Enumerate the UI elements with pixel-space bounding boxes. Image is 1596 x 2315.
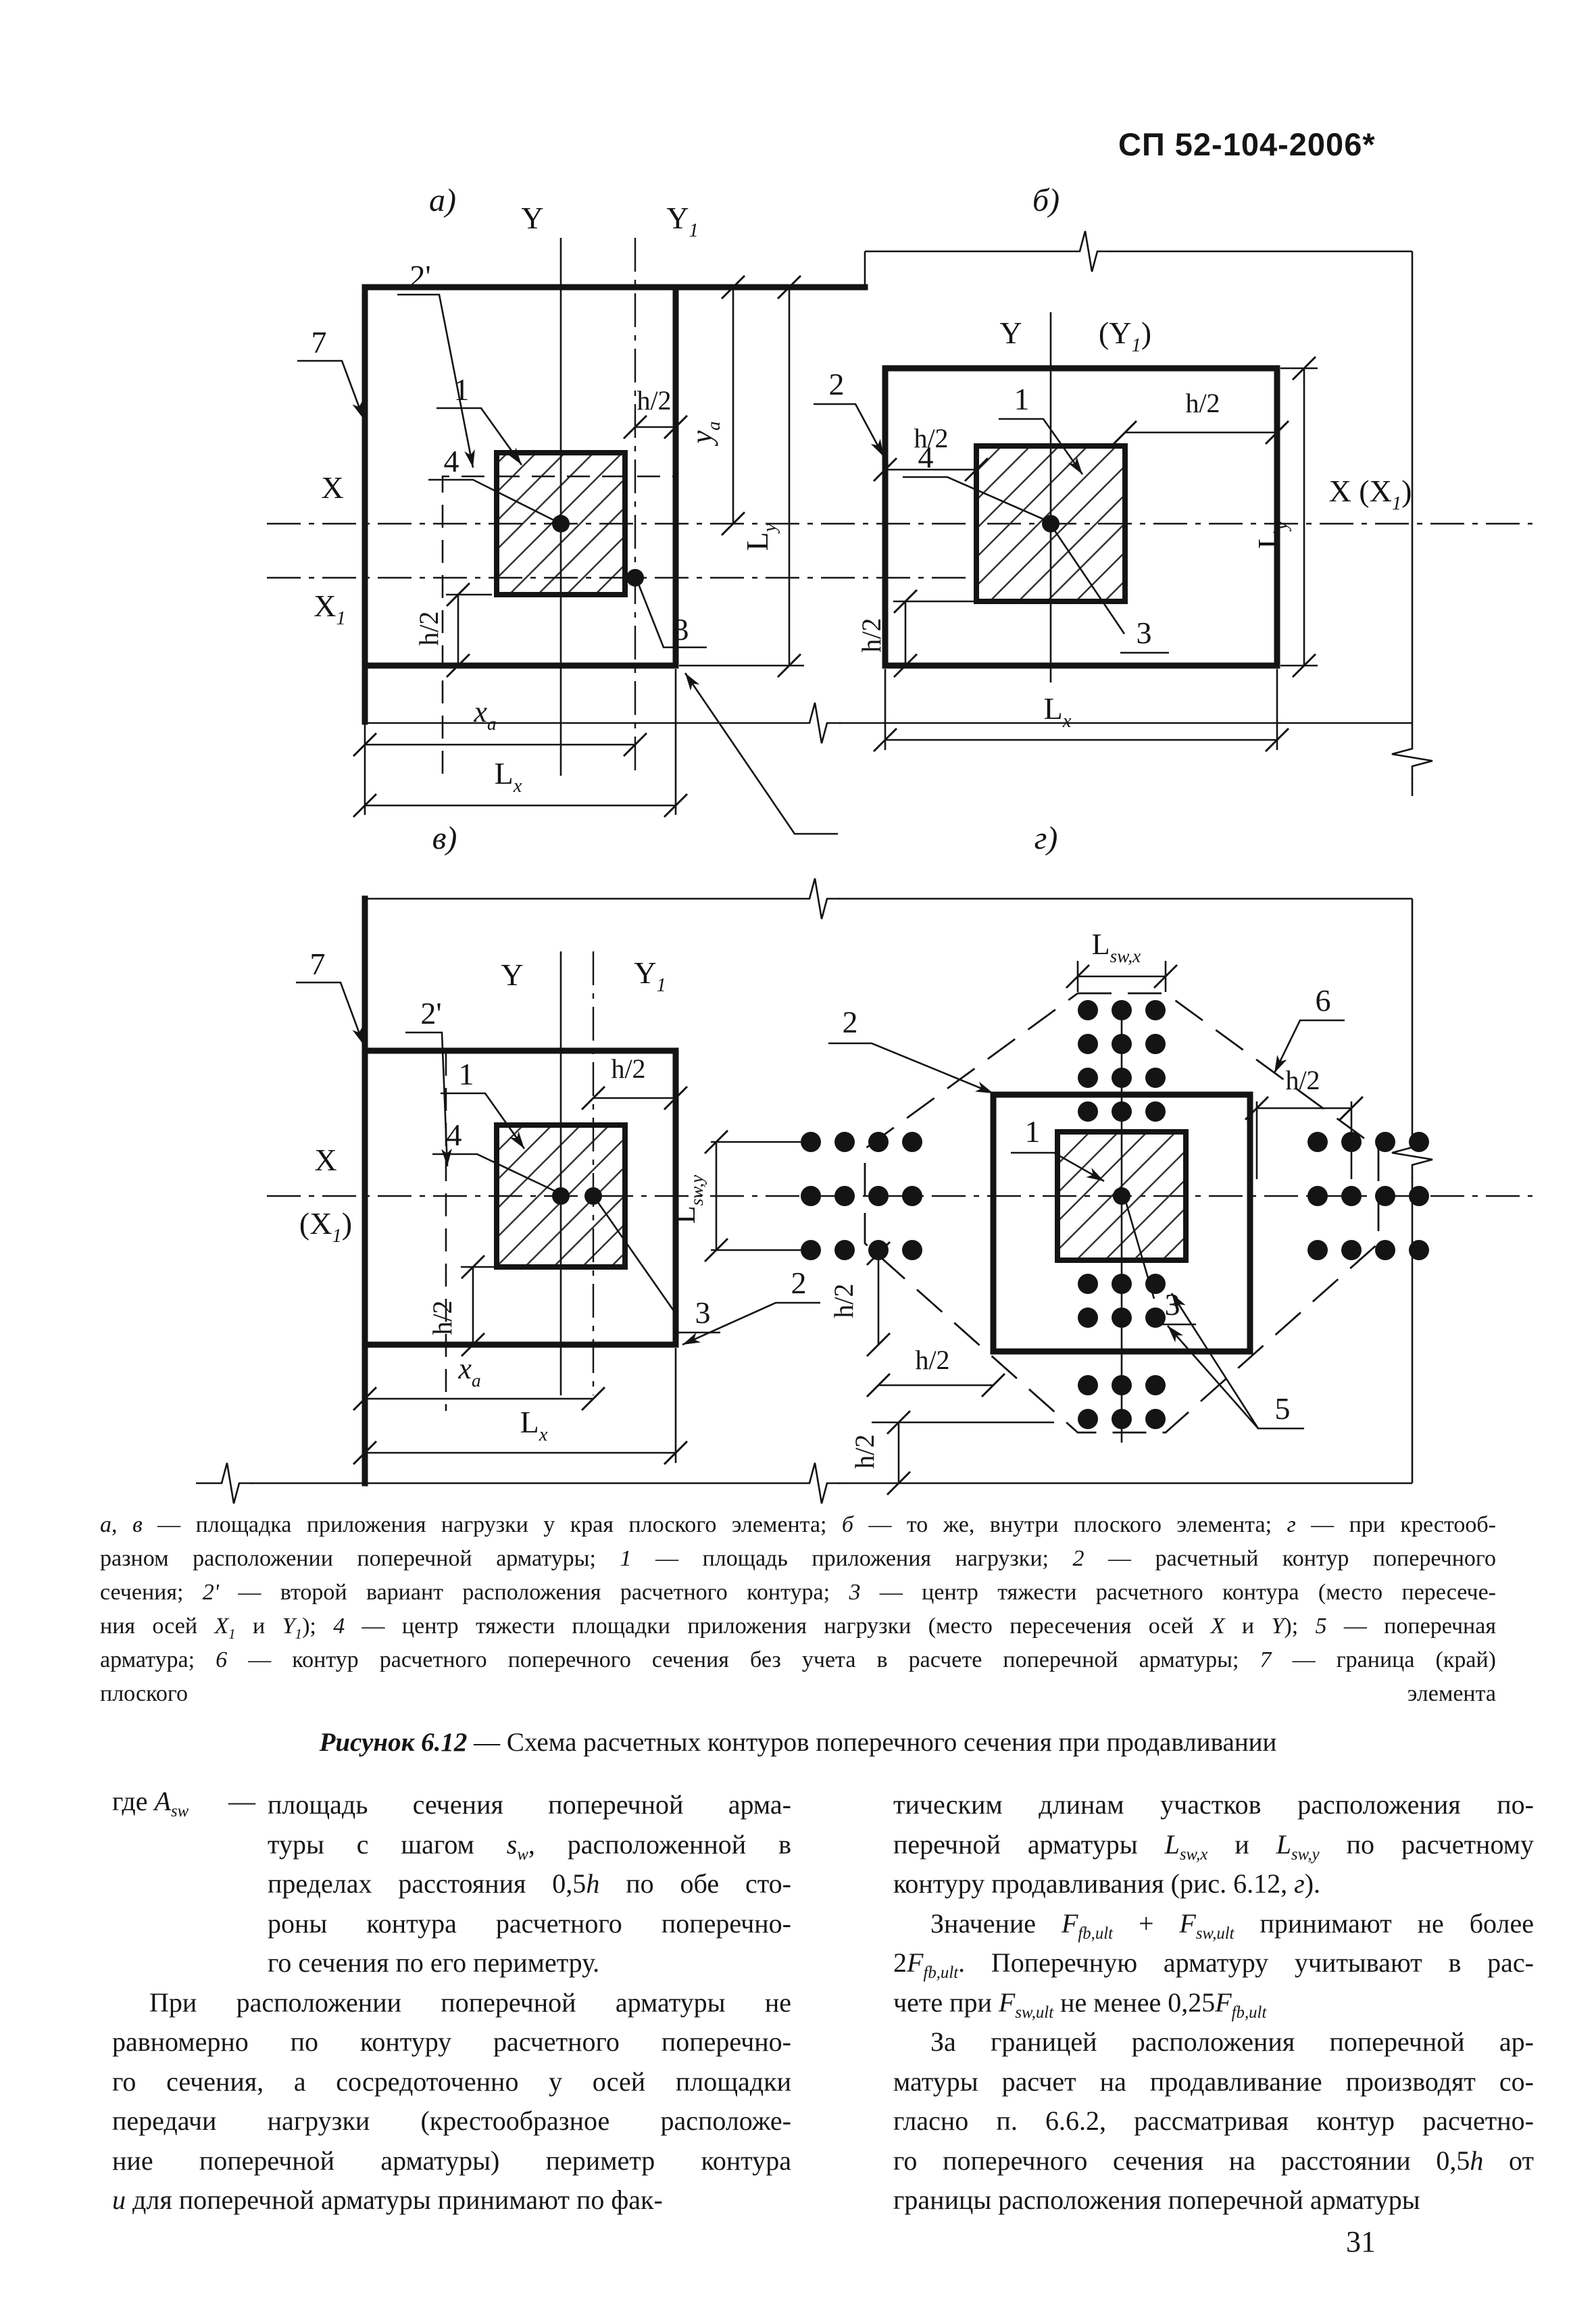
- text-line: ние поперечной арматуры) периметр контур…: [112, 2141, 791, 2181]
- rebar-dot: [801, 1240, 821, 1260]
- figure-caption: а, в — площадка приложения нагрузки у кр…: [100, 1508, 1496, 1711]
- fig-label-a-axis-y1-label: Y1: [666, 201, 699, 241]
- rebar-dot: [1078, 1034, 1098, 1054]
- rebar-dot: [1145, 1375, 1166, 1395]
- text-column-left: где Asw — площадь сечения поперечной арм…: [112, 1785, 791, 2220]
- fig-label-g-callout-3: 3: [1165, 1287, 1180, 1322]
- text-line: перечной арматуры Lsw,x и Lsw,y по расче…: [893, 1825, 1534, 1865]
- fig-label-v-panel: в): [432, 820, 457, 856]
- text-line: 2Ffb,ult. Поперечную арматуру учитывают …: [893, 1943, 1534, 1983]
- fig-label-a-dim-lx: Lx: [495, 756, 522, 797]
- centroid-dots: [552, 515, 1130, 1205]
- fig-label-b-axis-y1-label: (Y1): [1099, 316, 1151, 356]
- centroid-dot: [584, 1187, 602, 1205]
- document-page: СП 52-104-2006*: [0, 0, 1596, 2315]
- fig-label-v-callout-7: 7: [310, 947, 326, 981]
- text-line: За границей расположения поперечной ар-: [893, 2022, 1534, 2062]
- text-line: сечения; 2' — второй вариант расположени…: [100, 1576, 1496, 1610]
- rebar-dot: [834, 1132, 855, 1152]
- fig-label-a-callout-2v: 2': [409, 259, 430, 293]
- text-line: го поперечного сечения на расстоянии 0,5…: [893, 2141, 1534, 2181]
- rebar-dot: [1341, 1132, 1362, 1152]
- fig-label-g-callout-6: 6: [1316, 983, 1331, 1018]
- g-leader-2: [828, 1043, 993, 1093]
- rebar-dot: [1112, 1274, 1132, 1294]
- fig-label-g-dim-h2-b: h/2: [915, 1345, 949, 1375]
- text-line: а, в — площадка приложения нагрузки у кр…: [100, 1508, 1496, 1542]
- fig-label-g-callout-2: 2: [843, 1005, 858, 1039]
- fig-label-v-axis-x-label: X: [314, 1143, 336, 1177]
- rebar-dot: [834, 1240, 855, 1260]
- rebar-dot: [1307, 1240, 1328, 1260]
- text-line: равномерно по контуру расчетного попереч…: [112, 2022, 791, 2062]
- centroid-dot: [1113, 1187, 1130, 1205]
- rebar-dot: [868, 1186, 889, 1206]
- rebar-dot: [1409, 1240, 1429, 1260]
- text-line: границы расположения поперечной арматуры: [893, 2181, 1534, 2220]
- fig-label-g-dim-h2-c: h/2: [849, 1434, 880, 1468]
- where-clause: где Asw — площадь сечения поперечной арм…: [112, 1785, 791, 1983]
- fig-label-v-callout-3: 3: [695, 1295, 711, 1330]
- centroid-dot: [626, 569, 644, 587]
- rebar-dot: [834, 1186, 855, 1206]
- line-break-symbol: [1392, 735, 1432, 780]
- fig-label-a-callout-7: 7: [311, 325, 327, 359]
- fig-label-v-callout-1: 1: [459, 1057, 474, 1091]
- rebar-dot: [1307, 1186, 1328, 1206]
- rebar-dot: [1112, 1375, 1132, 1395]
- text-line: чете при Fsw,ult не менее 0,25Ffb,ult: [893, 1983, 1534, 2023]
- fig-label-b-panel: б): [1032, 182, 1059, 218]
- text-line: передачи нагрузки (крестообразное распол…: [112, 2101, 791, 2141]
- fig-label-g-dim-h2-a: h/2: [828, 1283, 859, 1318]
- fig-label-b-dim-ly: Ly: [1251, 521, 1292, 549]
- line-break-symbol: [796, 878, 841, 919]
- b-leader-2: [814, 404, 884, 457]
- text-line: разном расположении поперечной арматуры;…: [100, 1542, 1496, 1576]
- rebar-dot: [1078, 1375, 1098, 1395]
- where-dash: —: [228, 1785, 268, 1983]
- figure-6-12: а)YY12'714h/2XX13h/2yaLyxaLxб)Y(Y1)21h/2…: [0, 0, 1596, 1507]
- a-leader-3: [638, 582, 707, 647]
- figure-labels: а)YY12'714h/2XX13h/2yaLyxaLxб)Y(Y1)21h/2…: [299, 182, 1412, 1469]
- rebar-dot: [1145, 1308, 1166, 1328]
- fig-label-a-callout-4: 4: [444, 444, 459, 478]
- fig-label-a-callout-1: 1: [454, 372, 470, 407]
- fig-label-a-axis-y-label: Y: [521, 201, 543, 235]
- text-line: туры с шагом sw, расположенной в: [268, 1825, 791, 1865]
- rebar-dot: [1375, 1240, 1395, 1260]
- fig-label-a-axis-x-label: X: [321, 470, 343, 505]
- fig-label-g-panel: г): [1034, 820, 1058, 856]
- centroid-dot: [552, 515, 570, 532]
- where-definition: площадь сечения поперечной арма-туры с ш…: [268, 1785, 791, 1983]
- rebar-dot: [1145, 1068, 1166, 1088]
- fig-label-b-dim-lx: Lx: [1044, 691, 1072, 732]
- rebar-dot: [1341, 1240, 1362, 1260]
- rebar-dot: [902, 1240, 922, 1260]
- fig-label-v-axis-y1-label: Y1: [634, 955, 666, 996]
- paragraph: При расположении поперечной арматуры нер…: [112, 1983, 791, 2220]
- rebar-dot: [1145, 1000, 1166, 1020]
- rebar-dot: [1112, 1308, 1132, 1328]
- rebar-dot: [1375, 1132, 1395, 1152]
- text-line: го сечения по его периметру.: [268, 1943, 791, 1983]
- fig-label-b-axis-y-label: Y: [999, 316, 1022, 350]
- centroid-dot: [1042, 515, 1059, 532]
- fig-label-b-dim-h2-b: h/2: [856, 618, 887, 652]
- text-line: го сечения, а сосредоточенно у осей площ…: [112, 2062, 791, 2102]
- text-line: контуру продавливания (рис. 6.12, г).: [893, 1864, 1534, 1904]
- centroid-dot: [552, 1187, 570, 1205]
- rebar-dot: [1078, 1274, 1098, 1294]
- text-line: площадь сечения поперечной арма-: [268, 1785, 791, 1825]
- text-line: При расположении поперечной арматуры не: [112, 1983, 791, 2023]
- rebar-dot: [902, 1132, 922, 1152]
- rebar-dot: [1078, 1101, 1098, 1122]
- fig-label-g-callout-1: 1: [1025, 1114, 1041, 1149]
- fig-label-b-callout-3: 3: [1137, 616, 1152, 650]
- text-line: матуры расчет на продавливание производя…: [893, 2062, 1534, 2102]
- rebar-dot: [902, 1186, 922, 1206]
- fig-label-a-dim-ya: ya: [685, 421, 724, 446]
- text-column-right: тическим длинам участков расположения по…: [893, 1785, 1534, 2220]
- fig-label-b-dim-h2-r: h/2: [1185, 388, 1220, 418]
- text-line: и для поперечной арматуры принимают по ф…: [112, 2181, 791, 2220]
- text-line: арматура; 6 — контур расчетного поперечн…: [100, 1643, 1496, 1677]
- rebar-dot: [1112, 1101, 1132, 1122]
- rebar-dot: [1145, 1409, 1166, 1429]
- figure-title: Рисунок 6.12 — Схема расчетных контуров …: [100, 1727, 1496, 1758]
- rebar-dot: [1078, 1308, 1098, 1328]
- fig-label-a-dim-h2-left: h/2: [414, 611, 444, 645]
- rebar-dot: [1307, 1132, 1328, 1152]
- rebar-dot: [868, 1132, 889, 1152]
- rebar-dot: [1145, 1101, 1166, 1122]
- rebar-dot: [1078, 1000, 1098, 1020]
- fig-label-b-callout-2: 2: [829, 367, 845, 401]
- rebar-dot: [1341, 1186, 1362, 1206]
- text-line: ния осей X1 и Y1); 4 — центр тяжести пло…: [100, 1610, 1496, 1643]
- fig-label-v-callout-4: 4: [447, 1118, 462, 1152]
- a-leader-2: [685, 673, 838, 834]
- a-leader-7: [297, 361, 364, 419]
- fig-label-a-dim-ly: Ly: [740, 523, 780, 551]
- v-leader-7: [296, 982, 364, 1045]
- rebar-dot: [1375, 1186, 1395, 1206]
- text-line: роны контура расчетного поперечно-: [268, 1904, 791, 1944]
- fig-label-g-callout-5: 5: [1275, 1391, 1291, 1426]
- fig-label-a-callout-3: 3: [674, 612, 689, 647]
- fig-label-v-callout-2: 2: [791, 1266, 807, 1300]
- fig-label-v-dim-xa: xa: [457, 1352, 480, 1391]
- rebar-dot: [1112, 1068, 1132, 1088]
- rebar-dot: [1112, 1409, 1132, 1429]
- fig-label-a-panel: а): [429, 182, 456, 218]
- text-line: тическим длинам участков расположения по…: [893, 1785, 1534, 1825]
- rebar-dot: [1409, 1186, 1429, 1206]
- rebar-dot: [1112, 1034, 1132, 1054]
- fig-label-v-callout-2v: 2': [420, 996, 441, 1030]
- fig-label-g-dim-h2-r: h/2: [1285, 1065, 1320, 1095]
- fig-label-b-callout-4: 4: [918, 440, 934, 474]
- rebar-dot: [801, 1186, 821, 1206]
- rebar-dot: [1078, 1409, 1098, 1429]
- text-line: плоского элемента: [100, 1677, 1496, 1711]
- fig-label-v-dim-h2-b: h/2: [427, 1300, 457, 1335]
- fig-label-v-axis-x1-label: (X1): [299, 1206, 352, 1247]
- fig-label-v-axis-y-label: Y: [501, 957, 523, 992]
- fig-label-v-dim-lx: Lx: [520, 1405, 548, 1445]
- text-line: пределах расстояния 0,5h по обе сто-: [268, 1864, 791, 1904]
- fig-label-v-dim-h2-top: h/2: [611, 1053, 645, 1084]
- fig-label-a-dim-h2-top: h/2: [637, 385, 671, 416]
- rebar-dot: [1112, 1000, 1132, 1020]
- text-line: Значение Ffb,ult + Fsw,ult принимают не …: [893, 1904, 1534, 1944]
- text-line: гласно п. 6.6.2, рассматривая контур рас…: [893, 2101, 1534, 2141]
- where-term: где Asw: [112, 1785, 228, 1983]
- line-break-symbol: [796, 703, 841, 743]
- fig-label-a-axis-x1-label: X1: [314, 589, 346, 629]
- line-break-symbol: [208, 1463, 253, 1503]
- fig-label-b-axis-x-label: X (X1): [1329, 474, 1412, 514]
- rebar-dot: [868, 1240, 889, 1260]
- rebar-dot: [1078, 1068, 1098, 1088]
- rebar-dot: [1145, 1034, 1166, 1054]
- fig-label-a-dim-xa: xa: [473, 695, 496, 734]
- rebar-dot: [801, 1132, 821, 1152]
- page-number: 31: [1346, 2224, 1376, 2259]
- fig-label-b-callout-1: 1: [1014, 382, 1030, 416]
- paragraph: тическим длинам участков расположения по…: [893, 1785, 1534, 2220]
- rebar-dot: [1145, 1274, 1166, 1294]
- line-break-symbol: [1066, 231, 1111, 272]
- line-break-symbol: [796, 1463, 841, 1503]
- fig-label-g-dim-lswx: Lsw,x: [1092, 928, 1141, 966]
